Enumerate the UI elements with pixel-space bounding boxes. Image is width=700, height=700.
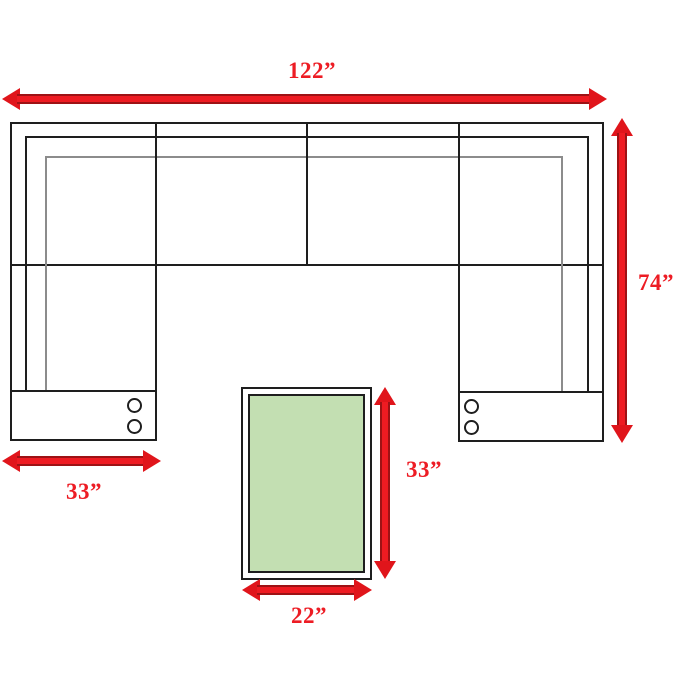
ottoman-length-arrow: [374, 387, 396, 579]
left-leg-circle-1: [127, 398, 142, 413]
overall-width-arrow: [2, 88, 607, 110]
chaise-width-label: 33”: [66, 479, 102, 505]
arrow-shaft: [257, 585, 357, 595]
left-cushion-line: [45, 156, 47, 391]
arrow-shaft: [17, 94, 592, 104]
arrow-shaft: [380, 402, 390, 564]
arrow-shaft: [617, 133, 627, 428]
right-leg-circle-1: [464, 399, 479, 414]
ottoman-length-label: 33”: [406, 457, 442, 483]
right-leg-circle-2: [464, 420, 479, 435]
ottoman-width-arrow: [242, 579, 372, 601]
left-leg-circle-2: [127, 419, 142, 434]
section-divider-middle: [306, 122, 308, 266]
overall-depth-arrow: [611, 118, 633, 443]
arrowhead-right-icon: [589, 88, 607, 110]
overall-width-label: 122”: [288, 58, 336, 84]
ottoman-width-label: 22”: [291, 603, 327, 629]
arrowhead-down-icon: [374, 561, 396, 579]
chaise-width-arrow: [2, 450, 161, 472]
arrowhead-right-icon: [143, 450, 161, 472]
right-chaise-base: [458, 391, 604, 442]
arrowhead-down-icon: [611, 425, 633, 443]
ottoman-top: [248, 394, 365, 573]
sofa-dimension-diagram: 122” 74” 33”: [0, 0, 700, 700]
right-cushion-line: [561, 156, 563, 391]
left-arm-inner-line: [25, 136, 27, 391]
back-cushion-line: [45, 156, 563, 158]
right-arm-inner-line: [587, 136, 589, 391]
arrowhead-right-icon: [354, 579, 372, 601]
overall-depth-label: 74”: [638, 270, 674, 296]
arrow-shaft: [17, 456, 146, 466]
